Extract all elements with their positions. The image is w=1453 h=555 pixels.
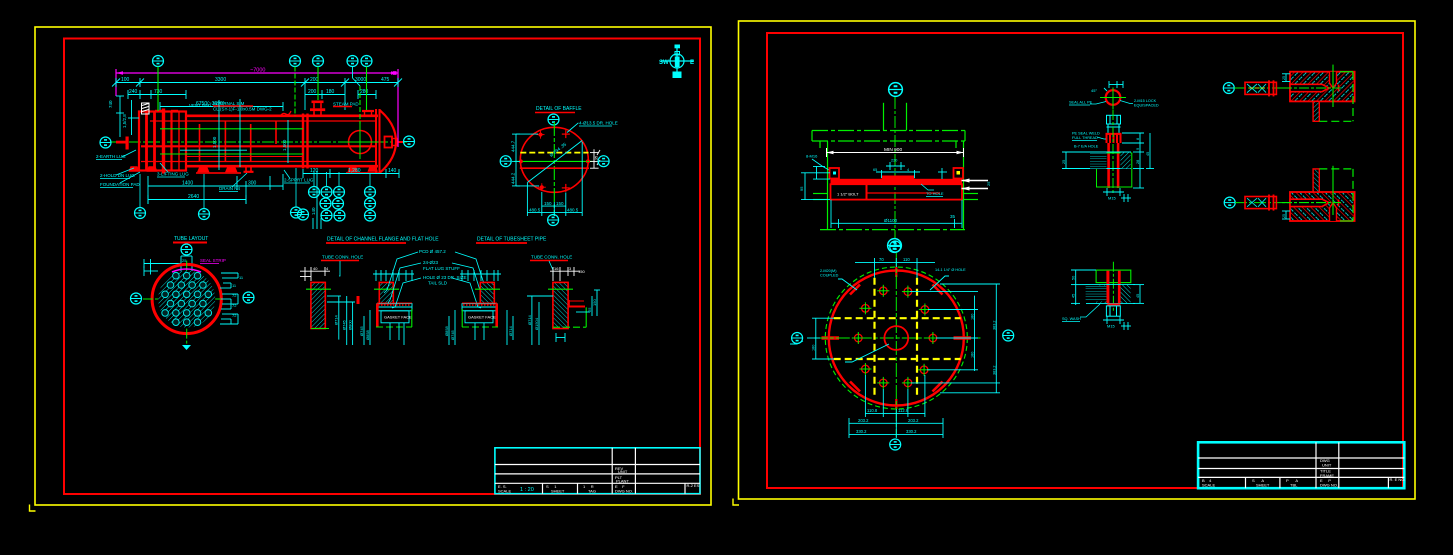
svg-text:SHEET: SHEET bbox=[1256, 483, 1270, 488]
svg-text:1400: 1400 bbox=[182, 181, 193, 187]
svg-text:8: 8 bbox=[1136, 138, 1140, 140]
svg-text:180: 180 bbox=[326, 89, 335, 95]
svg-text:480.5: 480.5 bbox=[567, 207, 579, 212]
svg-text:FLAT LUG STUFF: FLAT LUG STUFF bbox=[423, 266, 460, 271]
svg-text:180: 180 bbox=[971, 314, 975, 320]
svg-text:203.2: 203.2 bbox=[908, 418, 919, 423]
svg-text:Ø745: Ø745 bbox=[359, 325, 364, 336]
svg-text:1,280: 1,280 bbox=[348, 168, 361, 174]
svg-text:300: 300 bbox=[248, 181, 257, 187]
svg-text:150: 150 bbox=[556, 201, 564, 206]
svg-text:Ø858: Ø858 bbox=[444, 325, 449, 336]
svg-text:4-Ø13.5 DR. HOLE: 4-Ø13.5 DR. HOLE bbox=[579, 121, 618, 126]
svg-text:72: 72 bbox=[232, 313, 237, 318]
svg-text:9: 9 bbox=[1136, 148, 1140, 150]
svg-text:475: 475 bbox=[381, 77, 390, 83]
svg-text:140: 140 bbox=[311, 207, 316, 215]
svg-text:1 1/2" BOLT: 1 1/2" BOLT bbox=[837, 192, 859, 197]
svg-text:740: 740 bbox=[108, 100, 113, 108]
svg-text:3300: 3300 bbox=[215, 77, 226, 83]
svg-text:45: 45 bbox=[1146, 152, 1150, 156]
svg-text:14-1 1/4" Ø HOLE: 14-1 1/4" Ø HOLE bbox=[935, 268, 966, 272]
svg-text:25: 25 bbox=[587, 307, 592, 312]
svg-text:DETAIL OF TUBESHEET PIPE: DETAIL OF TUBESHEET PIPE bbox=[477, 237, 547, 243]
svg-text:203.2: 203.2 bbox=[858, 418, 869, 423]
svg-text:200: 200 bbox=[310, 77, 319, 83]
svg-text:FULL THREAD: FULL THREAD bbox=[1072, 136, 1098, 140]
svg-text:280: 280 bbox=[360, 89, 369, 95]
svg-text:R. E NO.: R. E NO. bbox=[1390, 477, 1406, 482]
svg-text:200: 200 bbox=[308, 89, 317, 95]
svg-text:444.2: 444.2 bbox=[511, 172, 516, 184]
svg-text:PE SEAL WELD: PE SEAL WELD bbox=[1072, 132, 1100, 136]
svg-text:DWG NO.: DWG NO. bbox=[615, 489, 633, 494]
svg-text:28: 28 bbox=[1136, 160, 1140, 164]
svg-text:TAIL SLD: TAIL SLD bbox=[428, 281, 448, 286]
svg-text:220: 220 bbox=[891, 159, 897, 163]
svg-text:2-M20(M): 2-M20(M) bbox=[820, 269, 837, 273]
svg-text:CL.(SY-1)F-1.0x0.5M DWG-2: CL.(SY-1)F-1.0x0.5M DWG-2 bbox=[213, 107, 272, 112]
svg-text:1,500: 1,500 bbox=[212, 136, 217, 148]
svg-text:HOLE Ø 23 DR. SIZE: HOLE Ø 23 DR. SIZE bbox=[423, 275, 467, 280]
svg-text:45°: 45° bbox=[1091, 88, 1097, 93]
svg-text:Ø714: Ø714 bbox=[527, 314, 532, 325]
svg-text:Ø1504: Ø1504 bbox=[534, 317, 539, 330]
svg-text:DETAIL OF BAFFLE: DETAIL OF BAFFLE bbox=[536, 106, 582, 112]
svg-text:1,500: 1,500 bbox=[282, 139, 287, 151]
svg-text:TUBE LAYOUT: TUBE LAYOUT bbox=[174, 236, 208, 242]
svg-text:150: 150 bbox=[592, 299, 597, 306]
svg-text:SEAL ALL PE: SEAL ALL PE bbox=[1069, 101, 1093, 105]
svg-text:Ø745: Ø745 bbox=[450, 329, 455, 340]
svg-text:E: E bbox=[690, 60, 694, 66]
svg-text:1,5/2,8: 1,5/2,8 bbox=[122, 114, 127, 128]
svg-text:TO HOLE: TO HOLE bbox=[926, 191, 944, 196]
svg-text:SCALE: SCALE bbox=[1202, 483, 1215, 488]
svg-text:330.2: 330.2 bbox=[906, 429, 917, 434]
svg-text:72: 72 bbox=[232, 293, 237, 298]
svg-text:TUBE CONN. HOLE: TUBE CONN. HOLE bbox=[322, 255, 363, 260]
svg-text:GASKET FACE: GASKET FACE bbox=[384, 315, 412, 320]
svg-text:UNIT: UNIT bbox=[1322, 463, 1332, 468]
svg-text:444.7: 444.7 bbox=[511, 140, 516, 152]
svg-text:240: 240 bbox=[129, 89, 138, 95]
svg-text:383.2: 383.2 bbox=[993, 365, 997, 375]
svg-text:COUPLED: COUPLED bbox=[820, 274, 839, 278]
svg-text:Ø714: Ø714 bbox=[334, 314, 339, 325]
svg-text:45: 45 bbox=[1072, 294, 1076, 298]
svg-text:SEAL STRIP: SEAL STRIP bbox=[200, 258, 226, 263]
svg-text:40: 40 bbox=[313, 266, 318, 271]
svg-text:95: 95 bbox=[799, 186, 804, 191]
svg-text:100: 100 bbox=[121, 77, 130, 83]
svg-text:2-M15 LOCK: 2-M15 LOCK bbox=[1134, 99, 1157, 103]
svg-text:Ø858: Ø858 bbox=[365, 329, 370, 340]
svg-text:24-Ø23: 24-Ø23 bbox=[423, 260, 439, 265]
svg-text:~7000: ~7000 bbox=[250, 68, 265, 74]
svg-text:480.5: 480.5 bbox=[529, 207, 541, 212]
svg-text:140: 140 bbox=[388, 168, 397, 174]
svg-text:35: 35 bbox=[950, 214, 956, 219]
svg-text:110.8: 110.8 bbox=[867, 408, 878, 413]
svg-text:8-M16: 8-M16 bbox=[806, 154, 818, 159]
svg-text:Ø714: Ø714 bbox=[508, 325, 513, 336]
svg-text:MIN 900: MIN 900 bbox=[884, 147, 902, 153]
svg-text:M15: M15 bbox=[1107, 324, 1116, 329]
svg-text:M15: M15 bbox=[1108, 196, 1117, 201]
svg-text:UNIT: UNIT bbox=[618, 469, 628, 474]
svg-text:TBL: TBL bbox=[1290, 483, 1298, 488]
svg-text:PCD Ø 457.2: PCD Ø 457.2 bbox=[419, 249, 446, 254]
svg-text:SHEET: SHEET bbox=[551, 489, 565, 494]
svg-text:330.2: 330.2 bbox=[856, 429, 867, 434]
svg-text:180: 180 bbox=[812, 345, 816, 351]
svg-text:25: 25 bbox=[1282, 76, 1286, 80]
svg-text:4: 4 bbox=[907, 168, 909, 172]
svg-text:TUBE CONN. HOLE: TUBE CONN. HOLE bbox=[531, 255, 572, 260]
svg-text:150: 150 bbox=[578, 269, 585, 274]
svg-text:50: 50 bbox=[1072, 276, 1076, 280]
svg-text:2640: 2640 bbox=[188, 194, 199, 200]
svg-text:70: 70 bbox=[879, 257, 884, 262]
svg-text:Ø1100: Ø1100 bbox=[884, 218, 898, 223]
svg-text:STEAM PAD: STEAM PAD bbox=[333, 102, 359, 107]
svg-text:SCALE: SCALE bbox=[498, 489, 511, 494]
svg-text:1 : 20: 1 : 20 bbox=[520, 487, 534, 493]
svg-text:SQ. WASH: SQ. WASH bbox=[1062, 317, 1081, 321]
svg-text:25: 25 bbox=[1062, 160, 1066, 164]
svg-text:VENT PAD: VENT PAD bbox=[189, 103, 212, 108]
svg-text:EQUISPACED: EQUISPACED bbox=[1134, 104, 1159, 108]
svg-text:SW: SW bbox=[659, 60, 669, 66]
svg-text:PLANT: PLANT bbox=[616, 479, 629, 484]
svg-text:112.8: 112.8 bbox=[898, 408, 909, 413]
svg-text:Ø745: Ø745 bbox=[342, 319, 347, 330]
svg-text:3-LIFTING LUG: 3-LIFTING LUG bbox=[157, 172, 189, 177]
svg-text:25: 25 bbox=[986, 181, 991, 186]
svg-text:110: 110 bbox=[903, 257, 910, 262]
svg-text:25: 25 bbox=[1282, 214, 1286, 218]
svg-text:2-EARTH LUG: 2-EARTH LUG bbox=[96, 154, 126, 159]
svg-text:TAG: TAG bbox=[588, 489, 596, 494]
svg-text:2-SPPRT LUG: 2-SPPRT LUG bbox=[284, 178, 314, 183]
svg-text:R-2 ES: R-2 ES bbox=[687, 483, 700, 488]
svg-text:45: 45 bbox=[1136, 294, 1140, 298]
svg-text:72: 72 bbox=[232, 303, 237, 308]
svg-text:DWG NO.: DWG NO. bbox=[1320, 483, 1338, 488]
svg-text:383.2: 383.2 bbox=[993, 320, 997, 330]
svg-text:GASKET FACE: GASKET FACE bbox=[468, 315, 496, 320]
svg-text:150: 150 bbox=[544, 201, 552, 206]
svg-text:180: 180 bbox=[971, 352, 975, 358]
svg-text:B-7 E/A HOLE: B-7 E/A HOLE bbox=[1074, 145, 1099, 149]
svg-text:DETAIL OF CHANNEL FLANGE AND F: DETAIL OF CHANNEL FLANGE AND FLAT HOLE bbox=[327, 237, 439, 243]
svg-text:65: 65 bbox=[873, 168, 877, 172]
svg-text:Ø800: Ø800 bbox=[348, 319, 353, 330]
svg-text:16: 16 bbox=[554, 266, 559, 271]
